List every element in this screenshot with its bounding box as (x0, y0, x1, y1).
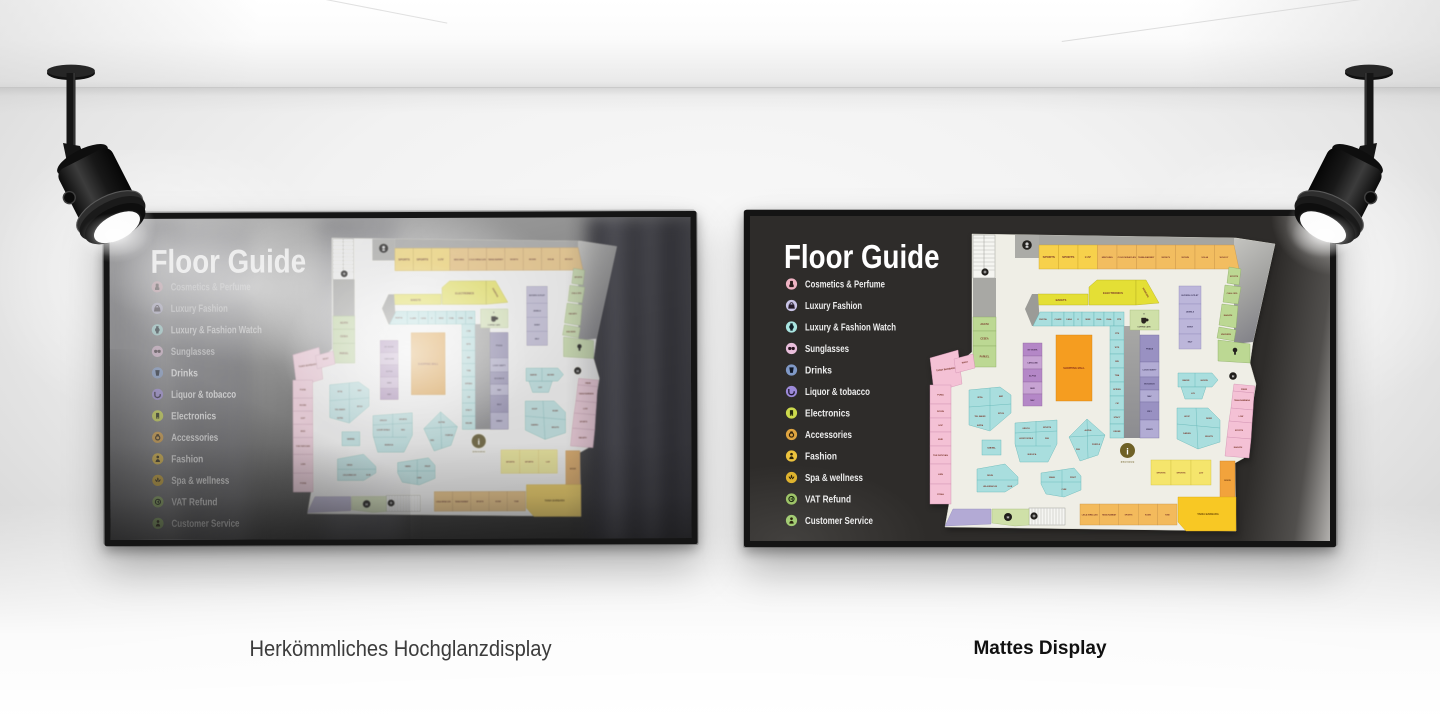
svg-text:SPORTS: SPORTS (1157, 473, 1167, 475)
svg-text:MIGUTS: MIGUTS (1205, 436, 1213, 438)
svg-text:TANIA BARNEY: TANIA BARNEY (1138, 256, 1155, 259)
svg-text:JACKIN: JACKIN (1200, 379, 1208, 382)
svg-text:SPORTS: SPORTS (1235, 430, 1244, 432)
svg-text:HOOF: HOOF (1184, 416, 1191, 418)
svg-text:NIKE: NIKE (1030, 388, 1035, 390)
svg-text:WOODECK: WOODECK (1144, 384, 1155, 386)
svg-text:ELECTRONICS: ELECTRONICS (1103, 291, 1123, 295)
svg-text:WIG: WIG (1076, 449, 1080, 451)
svg-text:THE FATICIAN: THE FATICIAN (933, 454, 948, 457)
svg-text:MODW: MODW (1224, 480, 1231, 482)
svg-text:MW: MW (1115, 361, 1119, 363)
svg-text:H: H (1232, 375, 1235, 379)
svg-text:Cosmetics & Perfume: Cosmetics & Perfume (805, 280, 885, 291)
svg-text:PURPLE: PURPLE (1092, 444, 1101, 446)
svg-text:ALPHA: ALPHA (1085, 429, 1092, 432)
svg-text:LIEN: LIEN (938, 474, 943, 476)
svg-text:CAROLINE: CAROLINE (1027, 362, 1038, 365)
svg-text:CTM: CTM (1117, 319, 1122, 321)
svg-text:DRUN: DRUN (987, 475, 993, 477)
svg-text:CHIK: CHIK (1062, 489, 1067, 491)
svg-text:H: H (1007, 516, 1010, 520)
svg-text:DAWNG: DAWNG (1183, 432, 1191, 435)
svg-text:KOSW: KOSW (1145, 515, 1151, 517)
svg-text:TWA: TWA (1115, 374, 1120, 377)
svg-text:FRUIT: FRUIT (1070, 477, 1077, 479)
svg-text:PRADA: PRADA (1146, 348, 1154, 351)
svg-text:TIEL MAKER: TIEL MAKER (975, 415, 987, 418)
svg-text:ROER: ROER (1206, 418, 1212, 420)
svg-text:Spa & wellness: Spa & wellness (805, 473, 863, 484)
svg-text:CHAL: CHAL (1096, 318, 1102, 321)
svg-text:LEILA MIRACLES: LEILA MIRACLES (1082, 514, 1099, 517)
svg-text:CHAL: CHAL (1106, 318, 1112, 321)
svg-text:NAGATH: NAGATH (1224, 314, 1233, 317)
svg-text:BAKETS: BAKETS (1056, 298, 1067, 302)
svg-text:CTM: CTM (1115, 333, 1120, 335)
svg-text:(information): (information) (1121, 461, 1135, 464)
svg-text:KNICKERS: KNICKERS (1221, 334, 1232, 336)
svg-text:MAY: MAY (1030, 399, 1035, 402)
svg-text:SPORTS: SPORTS (1125, 515, 1134, 517)
svg-text:KELME: KELME (1114, 431, 1122, 433)
svg-text:BARVE: BARVE (1183, 379, 1191, 382)
svg-text:MAY: MAY (999, 395, 1004, 398)
svg-text:SPURTS: SPURTS (1043, 427, 1052, 429)
svg-text:COFFEE CAFE: COFFEE CAFE (1137, 326, 1151, 329)
svg-text:Sunglasses: Sunglasses (805, 344, 849, 355)
svg-text:Luxury Fashion: Luxury Fashion (805, 301, 862, 312)
svg-text:MUD: MUD (938, 439, 943, 441)
svg-text:BUYERS OUTLET: BUYERS OUTLET (1182, 295, 1200, 297)
svg-text:VANIG: VANIG (1049, 476, 1056, 479)
svg-text:Electronics: Electronics (805, 409, 850, 420)
svg-text:TANIA BARBARA: TANIA BARBARA (1197, 512, 1219, 516)
svg-text:SPRING: SPRING (1113, 389, 1121, 391)
svg-text:ROXIN: ROXIN (937, 411, 944, 413)
svg-text:LEILA MIRACLES: LEILA MIRACLES (983, 485, 998, 488)
svg-text:PRIME: PRIME (1241, 389, 1248, 391)
svg-text:LOW: LOW (1239, 416, 1244, 418)
svg-text:CASA: CASA (1066, 318, 1072, 321)
svg-text:SPORTS: SPORTS (1177, 473, 1187, 475)
svg-text:CESEA: CESEA (980, 338, 989, 341)
svg-text:SPORTS: SPORTS (1230, 276, 1239, 278)
svg-text:Accessories: Accessories (805, 430, 852, 441)
svg-text:TOMI: TOMI (1165, 515, 1170, 517)
svg-text:WOGOY: WOGOY (1220, 257, 1229, 259)
svg-text:WIG: WIG (1045, 438, 1049, 440)
svg-text:LUXURY DETALE: LUXURY DETALE (1019, 437, 1034, 440)
svg-text:MAY: MAY (1147, 395, 1152, 398)
svg-text:SHOPPING MALL: SHOPPING MALL (1063, 366, 1085, 370)
svg-text:PARUEL: PARUEL (980, 356, 990, 359)
svg-text:WOSIN: WOSIN (1182, 257, 1190, 259)
svg-text:TANIA RAMBAT: TANIA RAMBAT (1102, 514, 1117, 517)
svg-text:Fashion: Fashion (805, 452, 837, 463)
svg-text:LOUIS VANITY: LOUIS VANITY (1143, 369, 1158, 372)
svg-text:PUMA: PUMA (937, 394, 944, 397)
svg-text:SHINY: SHINY (1187, 327, 1194, 329)
svg-text:GRUCH: GRUCH (1022, 428, 1030, 430)
svg-text:VAT Refund: VAT Refund (805, 495, 851, 506)
svg-text:Luxury & Fashion Watch: Luxury & Fashion Watch (805, 323, 896, 334)
svg-text:POMA: POMA (937, 493, 944, 496)
svg-text:MILY: MILY (1188, 342, 1193, 344)
svg-text:SPORTS: SPORTS (1062, 255, 1074, 259)
svg-text:COLD MIRACLES: COLD MIRACLES (1118, 256, 1137, 259)
svg-text:IETIA: IETIA (977, 396, 983, 399)
svg-text:CM: CM (1115, 403, 1118, 405)
svg-text:i: i (1126, 446, 1129, 456)
svg-text:WINNY: WINNY (1146, 429, 1153, 431)
svg-text:WTS: WTS (1115, 347, 1120, 349)
svg-text:WOMYS: WOMYS (1161, 257, 1170, 259)
svg-text:GOP: GOP (938, 425, 943, 427)
svg-text:WILY: WILY (1147, 411, 1152, 413)
svg-text:KLIK: KLIK (1008, 486, 1013, 488)
svg-text:AGATH: AGATH (980, 323, 989, 326)
svg-text:MY WORK: MY WORK (1028, 350, 1038, 352)
svg-text:SUPRA: SUPRA (977, 424, 984, 427)
svg-text:MEICHING: MEICHING (1102, 257, 1113, 259)
svg-text:ALPHA: ALPHA (1029, 375, 1036, 378)
svg-text:JEWELS: JEWELS (1186, 312, 1195, 314)
svg-text:TANIA RAMBADA: TANIA RAMBADA (1234, 399, 1250, 402)
svg-text:RUSTIA: RUSTIA (1039, 318, 1047, 321)
svg-text:CHA & ORG: CHA & ORG (1227, 292, 1238, 295)
svg-text:MIKE: MIKE (1086, 319, 1092, 321)
svg-text:SOLIA: SOLIA (1201, 256, 1208, 259)
svg-text:Liquor & tobacco: Liquor & tobacco (805, 387, 870, 398)
svg-text:CLARE: CLARE (1055, 318, 1063, 321)
svg-text:SPORTS: SPORTS (1043, 255, 1055, 259)
svg-text:Customer Service: Customer Service (805, 516, 873, 527)
svg-text:Drinks: Drinks (805, 366, 832, 377)
svg-text:IETUS: IETUS (998, 413, 1005, 415)
svg-text:SABINAL: SABINAL (987, 447, 996, 450)
svg-text:LUV: LUV (1085, 255, 1091, 259)
svg-text:STACY: STACY (1114, 416, 1121, 419)
svg-text:NAGATH: NAGATH (1234, 446, 1243, 449)
svg-text:BUDUCA: BUDUCA (1028, 453, 1037, 456)
svg-text:LUV: LUV (1199, 473, 1204, 475)
svg-text:LUV: LUV (1191, 393, 1196, 395)
